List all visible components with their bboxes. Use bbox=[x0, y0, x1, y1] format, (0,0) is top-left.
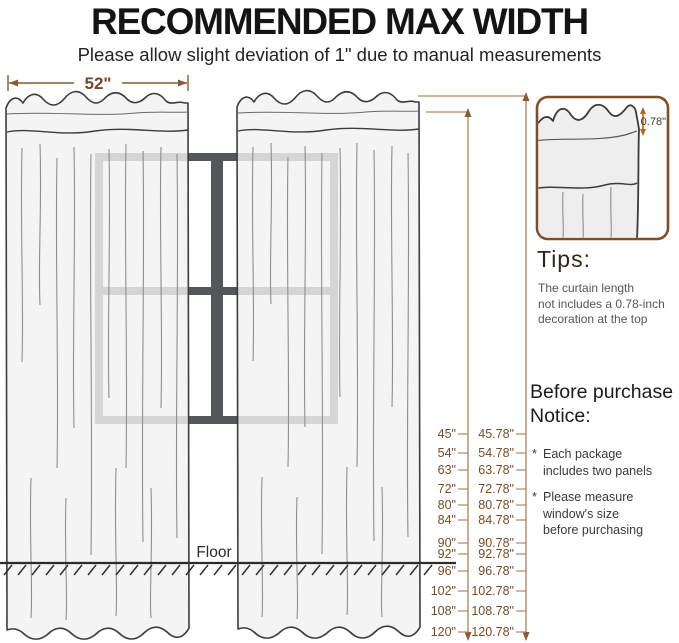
notice-heading-line: Before purchase bbox=[530, 381, 673, 405]
bullet-lines: Each package includes two panels bbox=[543, 446, 652, 479]
page-title: RECOMMENDED MAX WIDTH bbox=[0, 1, 679, 43]
total-label: 80.78" bbox=[478, 498, 514, 512]
width-dimension: 52" bbox=[8, 74, 188, 93]
total-label: 102.78" bbox=[471, 584, 514, 598]
total-label: 96.78" bbox=[478, 564, 514, 578]
page: Floor 52" 45" 54" bbox=[0, 0, 679, 643]
decoration-height-label: 0.78" bbox=[641, 116, 666, 128]
size-label: 108" bbox=[431, 604, 456, 618]
length-scale: 45" 54" 63" 72" 80" 84" 90" 92" 96" 102"… bbox=[418, 92, 530, 641]
notice-bullet-packages: * Each package includes two panels bbox=[532, 446, 652, 479]
tips-line: decoration at the top bbox=[538, 312, 665, 328]
tips-body: The curtain length not includes a 0.78-i… bbox=[538, 281, 665, 328]
tips-line: not includes a 0.78-inch bbox=[538, 297, 665, 313]
total-label: 120.78" bbox=[471, 625, 514, 639]
size-label: 102" bbox=[431, 584, 456, 598]
notice-heading: Before purchase Notice: bbox=[530, 381, 673, 428]
size-label: 84" bbox=[438, 513, 456, 527]
bullet-marker: * bbox=[532, 489, 543, 539]
right-curtain-panel bbox=[237, 91, 420, 639]
total-label: 108.78" bbox=[471, 604, 514, 618]
size-label: 63" bbox=[438, 463, 456, 477]
size-tick-marks bbox=[458, 434, 468, 632]
size-label: 54" bbox=[438, 446, 456, 460]
bullet-line: before purchasing bbox=[543, 522, 643, 539]
total-label: 45.78" bbox=[478, 427, 514, 441]
size-label: 72" bbox=[438, 482, 456, 496]
bullet-line: window's size bbox=[543, 506, 643, 523]
total-label: 63.78" bbox=[478, 463, 514, 477]
notice-heading-line: Notice: bbox=[530, 405, 673, 429]
total-label: 92.78" bbox=[478, 547, 514, 561]
page-subtitle: Please allow slight deviation of 1" due … bbox=[0, 44, 679, 66]
total-label: 84.78" bbox=[478, 513, 514, 527]
size-label: 45" bbox=[438, 427, 456, 441]
bullet-line: includes two panels bbox=[543, 463, 652, 480]
bullet-line: Please measure bbox=[543, 489, 643, 506]
size-label: 80" bbox=[438, 498, 456, 512]
notice-bullet-measure: * Please measure window's size before pu… bbox=[532, 489, 643, 539]
inset-curtain-closeup bbox=[535, 105, 639, 239]
bullet-lines: Please measure window's size before purc… bbox=[543, 489, 643, 539]
total-tick-marks bbox=[516, 434, 526, 632]
tips-line: The curtain length bbox=[538, 281, 665, 297]
bullet-line: Each package bbox=[543, 446, 652, 463]
size-label: 96" bbox=[438, 564, 456, 578]
size-label: 120" bbox=[431, 625, 456, 639]
tips-heading: Tips: bbox=[537, 246, 591, 273]
header-detail-inset: 0.78" bbox=[535, 95, 672, 243]
size-label: 92" bbox=[438, 547, 456, 561]
floor-label: Floor bbox=[196, 544, 231, 561]
left-curtain-panel bbox=[6, 92, 189, 640]
total-label: 72.78" bbox=[478, 482, 514, 496]
total-label: 54.78" bbox=[478, 446, 514, 460]
width-dimension-label: 52" bbox=[85, 74, 112, 93]
floor-hatching bbox=[0, 565, 434, 577]
bullet-marker: * bbox=[532, 446, 543, 479]
